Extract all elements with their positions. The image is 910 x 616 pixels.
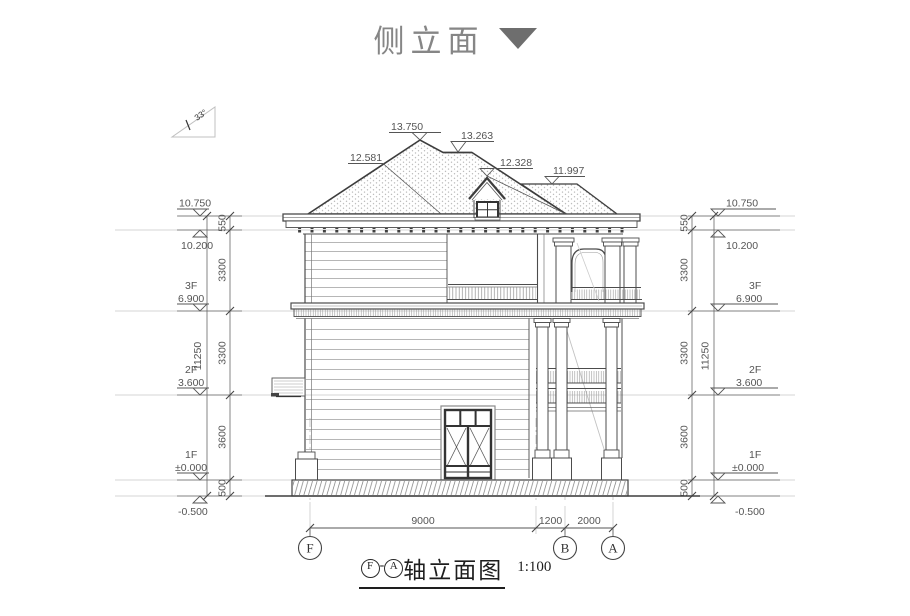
roof-mark-12581: 12.581 (350, 152, 382, 164)
floor-3f-left: 3F (185, 280, 197, 292)
dim-550-left: 550 (217, 214, 229, 232)
roof-mark-11997: 11.997 (553, 165, 584, 177)
slope-label: 33° (192, 107, 208, 123)
dim-total-right: 11250 (700, 342, 712, 371)
dim-3300b-left: 3300 (217, 341, 229, 365)
dim-3600-left: 3600 (217, 425, 229, 449)
floor-1f-right: 1F (749, 449, 761, 461)
dim-3300a-right: 3300 (679, 258, 691, 282)
dim-3300a-left: 3300 (217, 258, 229, 282)
roof-slope-indicator: 33° (172, 107, 215, 137)
roof-mark-13263: 13.263 (461, 130, 493, 142)
dim-3600-right: 3600 (679, 425, 691, 449)
level-6900-right: 6.900 (736, 293, 762, 305)
level-0-right: ±0.000 (732, 462, 764, 474)
caption-scale: 1:100 (517, 559, 551, 575)
dim-9000: 9000 (411, 515, 435, 527)
level-10200-left: 10.200 (181, 240, 213, 252)
balcony-railing (447, 285, 537, 300)
third-floor-band (291, 303, 644, 319)
caption-axis-start: F (361, 559, 380, 578)
right-dimension-labels: 550 3300 3300 3600 500 11250 (679, 214, 712, 497)
level-m500-left: -0.500 (178, 506, 208, 518)
floor-2f-left: 2F (185, 364, 197, 376)
right-level-texts: 10.750 10.200 3F 6.900 2F 3.600 1F ±0.00… (726, 198, 765, 519)
level-3600-right: 3.600 (736, 377, 762, 389)
caption-axis-end: A (384, 559, 403, 578)
floor-3f-right: 3F (749, 280, 761, 292)
bay-pilasters (534, 319, 620, 451)
level-m500-right: -0.500 (735, 506, 765, 518)
elevation-drawing: 550 3300 3300 3600 500 11250 550 3300 33… (0, 0, 910, 616)
dim-550-right: 550 (679, 214, 691, 232)
level-10200-right: 10.200 (726, 240, 758, 252)
plinth (292, 480, 628, 496)
level-10750-right: 10.750 (726, 198, 758, 210)
floor-1f-left: 1F (185, 449, 197, 461)
eave-cornice (283, 214, 640, 234)
roof-mark-12328: 12.328 (500, 157, 532, 169)
left-dimension-labels: 550 3300 3300 3600 500 11250 (192, 214, 229, 497)
drawing-caption: F-A轴立面图 1:100 (0, 551, 910, 589)
dim-2000: 2000 (577, 515, 601, 527)
level-6900-left: 6.900 (178, 293, 204, 305)
wall-ledge (271, 378, 305, 397)
sheet-header: 侧立面 (0, 16, 910, 61)
stair-bay (534, 319, 622, 459)
entrance-door (441, 406, 495, 480)
floor-2f-right: 2F (749, 364, 761, 376)
title-arrow-icon (499, 28, 537, 49)
level-0-left: ±0.000 (175, 462, 207, 474)
roof-mark-13750: 13.750 (391, 121, 423, 133)
right-level-markers (711, 209, 778, 503)
dim-500-right: 500 (679, 479, 691, 497)
level-3600-left: 3.600 (178, 377, 204, 389)
caption-title: 轴立面图 (403, 558, 503, 583)
page-title: 侧立面 (374, 24, 485, 59)
elevation-sheet: 侧立面 (0, 0, 910, 616)
dim-500-left: 500 (217, 479, 229, 497)
dim-3300b-right: 3300 (679, 341, 691, 365)
dim-1200: 1200 (539, 515, 563, 527)
third-floor (305, 234, 642, 303)
level-10750-left: 10.750 (179, 198, 211, 210)
